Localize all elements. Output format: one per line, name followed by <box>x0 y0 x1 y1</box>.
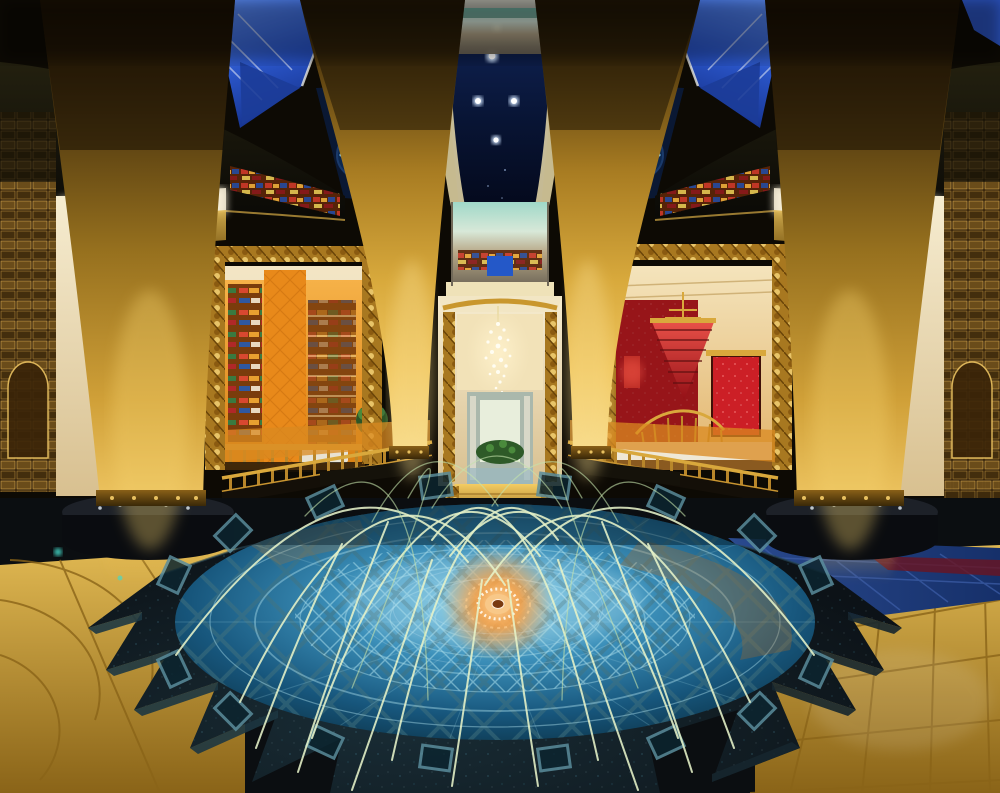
mosaic-pillar-left <box>0 112 56 492</box>
balcony-mirror <box>446 202 554 296</box>
top-vignette <box>0 0 1000 60</box>
boutique-frame-top <box>205 246 382 262</box>
atrium-lobby-photo <box>0 0 1000 793</box>
atrium-scene <box>0 0 1000 793</box>
mosaic-pillar-right <box>944 112 1000 492</box>
vista-hallway <box>438 296 562 486</box>
boutique-shelves-left <box>228 284 262 442</box>
